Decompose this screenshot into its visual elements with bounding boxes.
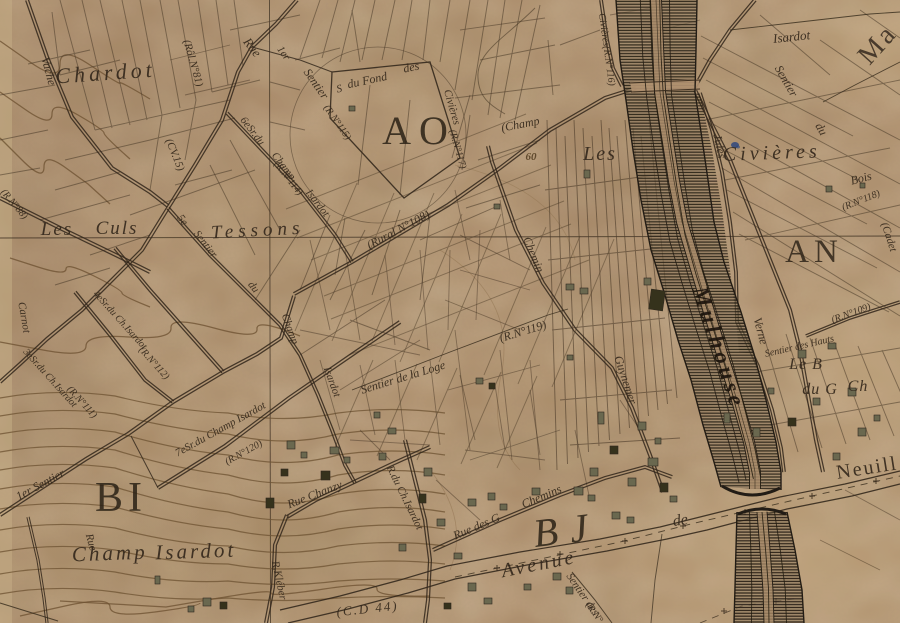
- svg-text:Les: Les: [40, 219, 73, 240]
- svg-text:Le B: Le B: [788, 356, 823, 373]
- svg-text:de: de: [672, 511, 689, 530]
- svg-text:BI: BI: [95, 475, 147, 521]
- svg-text:Champ: Champ: [72, 540, 148, 567]
- svg-text:Isardot: Isardot: [154, 538, 237, 565]
- svg-text:Les: Les: [582, 143, 617, 165]
- svg-text:Ch: Ch: [848, 378, 869, 395]
- svg-text:Civières: Civières: [722, 140, 821, 165]
- svg-text:Culs: Culs: [96, 218, 139, 239]
- svg-text:AO: AO: [382, 108, 456, 153]
- svg-text:AN: AN: [785, 234, 843, 270]
- svg-text:du G: du G: [802, 381, 838, 398]
- svg-text:60: 60: [526, 151, 538, 163]
